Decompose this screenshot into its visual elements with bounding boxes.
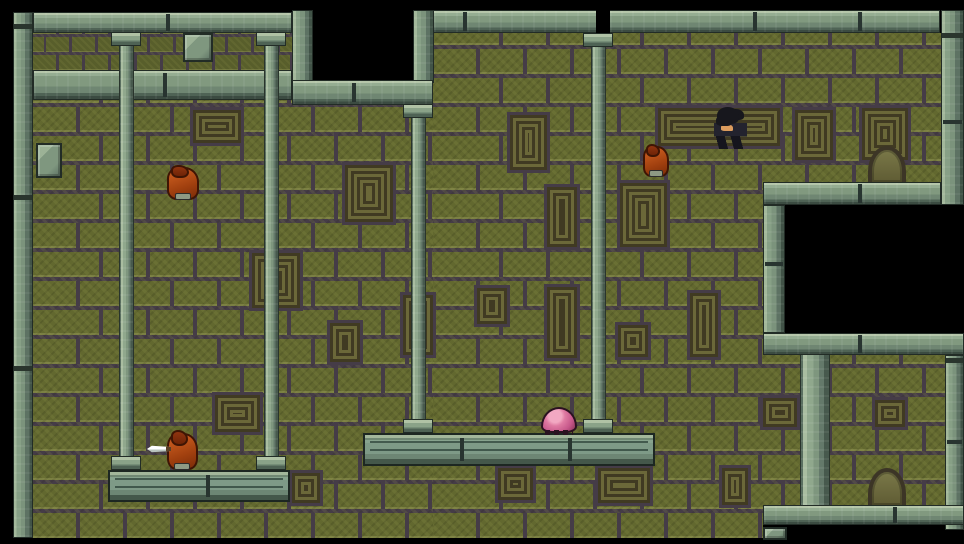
lower-right-beam [763, 505, 964, 525]
wall-carving [795, 110, 833, 160]
upper-brick-band [33, 33, 292, 70]
imp-enemy-lower[interactable] [167, 433, 198, 470]
column-shaft-d [591, 33, 606, 419]
opening-top-beam [763, 182, 941, 205]
ceiling-beam-left [33, 12, 292, 33]
wall-carving [620, 183, 667, 247]
column-base-d [583, 419, 613, 433]
opening-bottom-beam [763, 333, 964, 355]
stone-seam [753, 12, 757, 31]
stone-seam [206, 475, 210, 497]
stone-stub [763, 527, 787, 540]
imp-enemy-upper-right[interactable] [643, 146, 669, 177]
game-viewport[interactable] [0, 0, 964, 544]
column-capital-c [403, 104, 433, 118]
column-base-b [256, 456, 286, 470]
wall-block [36, 143, 62, 178]
middle-platform [363, 433, 655, 466]
ceiling-beam-right [433, 10, 940, 33]
wall-carving [477, 288, 507, 324]
stone-seam [947, 440, 962, 444]
left-platform [108, 470, 290, 502]
column-shaft-a [119, 32, 134, 458]
column-capital-b [256, 32, 286, 46]
column-capital-d [583, 33, 613, 47]
left-wall-edge [13, 12, 33, 538]
left-void [0, 0, 13, 544]
wall-carving [215, 395, 260, 432]
ceiling-gap [596, 0, 610, 33]
stone-seam [858, 335, 862, 353]
stone-seam [858, 184, 862, 203]
column-shaft-b [264, 32, 279, 458]
opening-ledge [292, 80, 433, 105]
bottom-void [0, 538, 964, 544]
wall-carving [598, 468, 650, 503]
opening-frame-left [292, 10, 313, 83]
wall-carving [498, 468, 533, 500]
stone-seam [765, 262, 783, 266]
opening-side-frame [763, 205, 785, 333]
stone-seam [943, 120, 962, 124]
right-wall-edge-upper [941, 10, 964, 205]
ceiling-opening [313, 0, 413, 82]
stone-seam [893, 507, 897, 523]
column-base-a [111, 456, 141, 470]
stone-seam [166, 14, 170, 31]
column-capital-a [111, 32, 141, 46]
wall-carving [510, 115, 547, 170]
wall-carving [618, 325, 648, 357]
wall-carving [345, 165, 393, 222]
stone-seam [460, 438, 464, 461]
wall-carving [763, 398, 797, 427]
stone-seam [163, 73, 167, 97]
wall-carving [690, 293, 718, 357]
imp-enemy-upper-left[interactable] [167, 167, 199, 200]
wall-carving [292, 473, 320, 503]
wide-pillar [800, 355, 830, 505]
wall-carving [330, 323, 360, 362]
stone-seam [858, 12, 862, 31]
hanging-block [183, 33, 213, 62]
right-wall-opening [785, 205, 964, 333]
opening-frame-right [413, 10, 434, 83]
column-base-c [403, 419, 433, 433]
column-shaft-c [411, 104, 426, 422]
stone-seam [463, 12, 467, 31]
wall-carving [875, 400, 905, 427]
stone-seam [568, 438, 572, 461]
wall-carving [722, 468, 748, 505]
wall-carving [547, 287, 577, 358]
hero-character[interactable] [714, 107, 747, 149]
wall-carving [193, 110, 241, 143]
stone-seam [352, 83, 356, 102]
wall-carving [547, 187, 577, 247]
